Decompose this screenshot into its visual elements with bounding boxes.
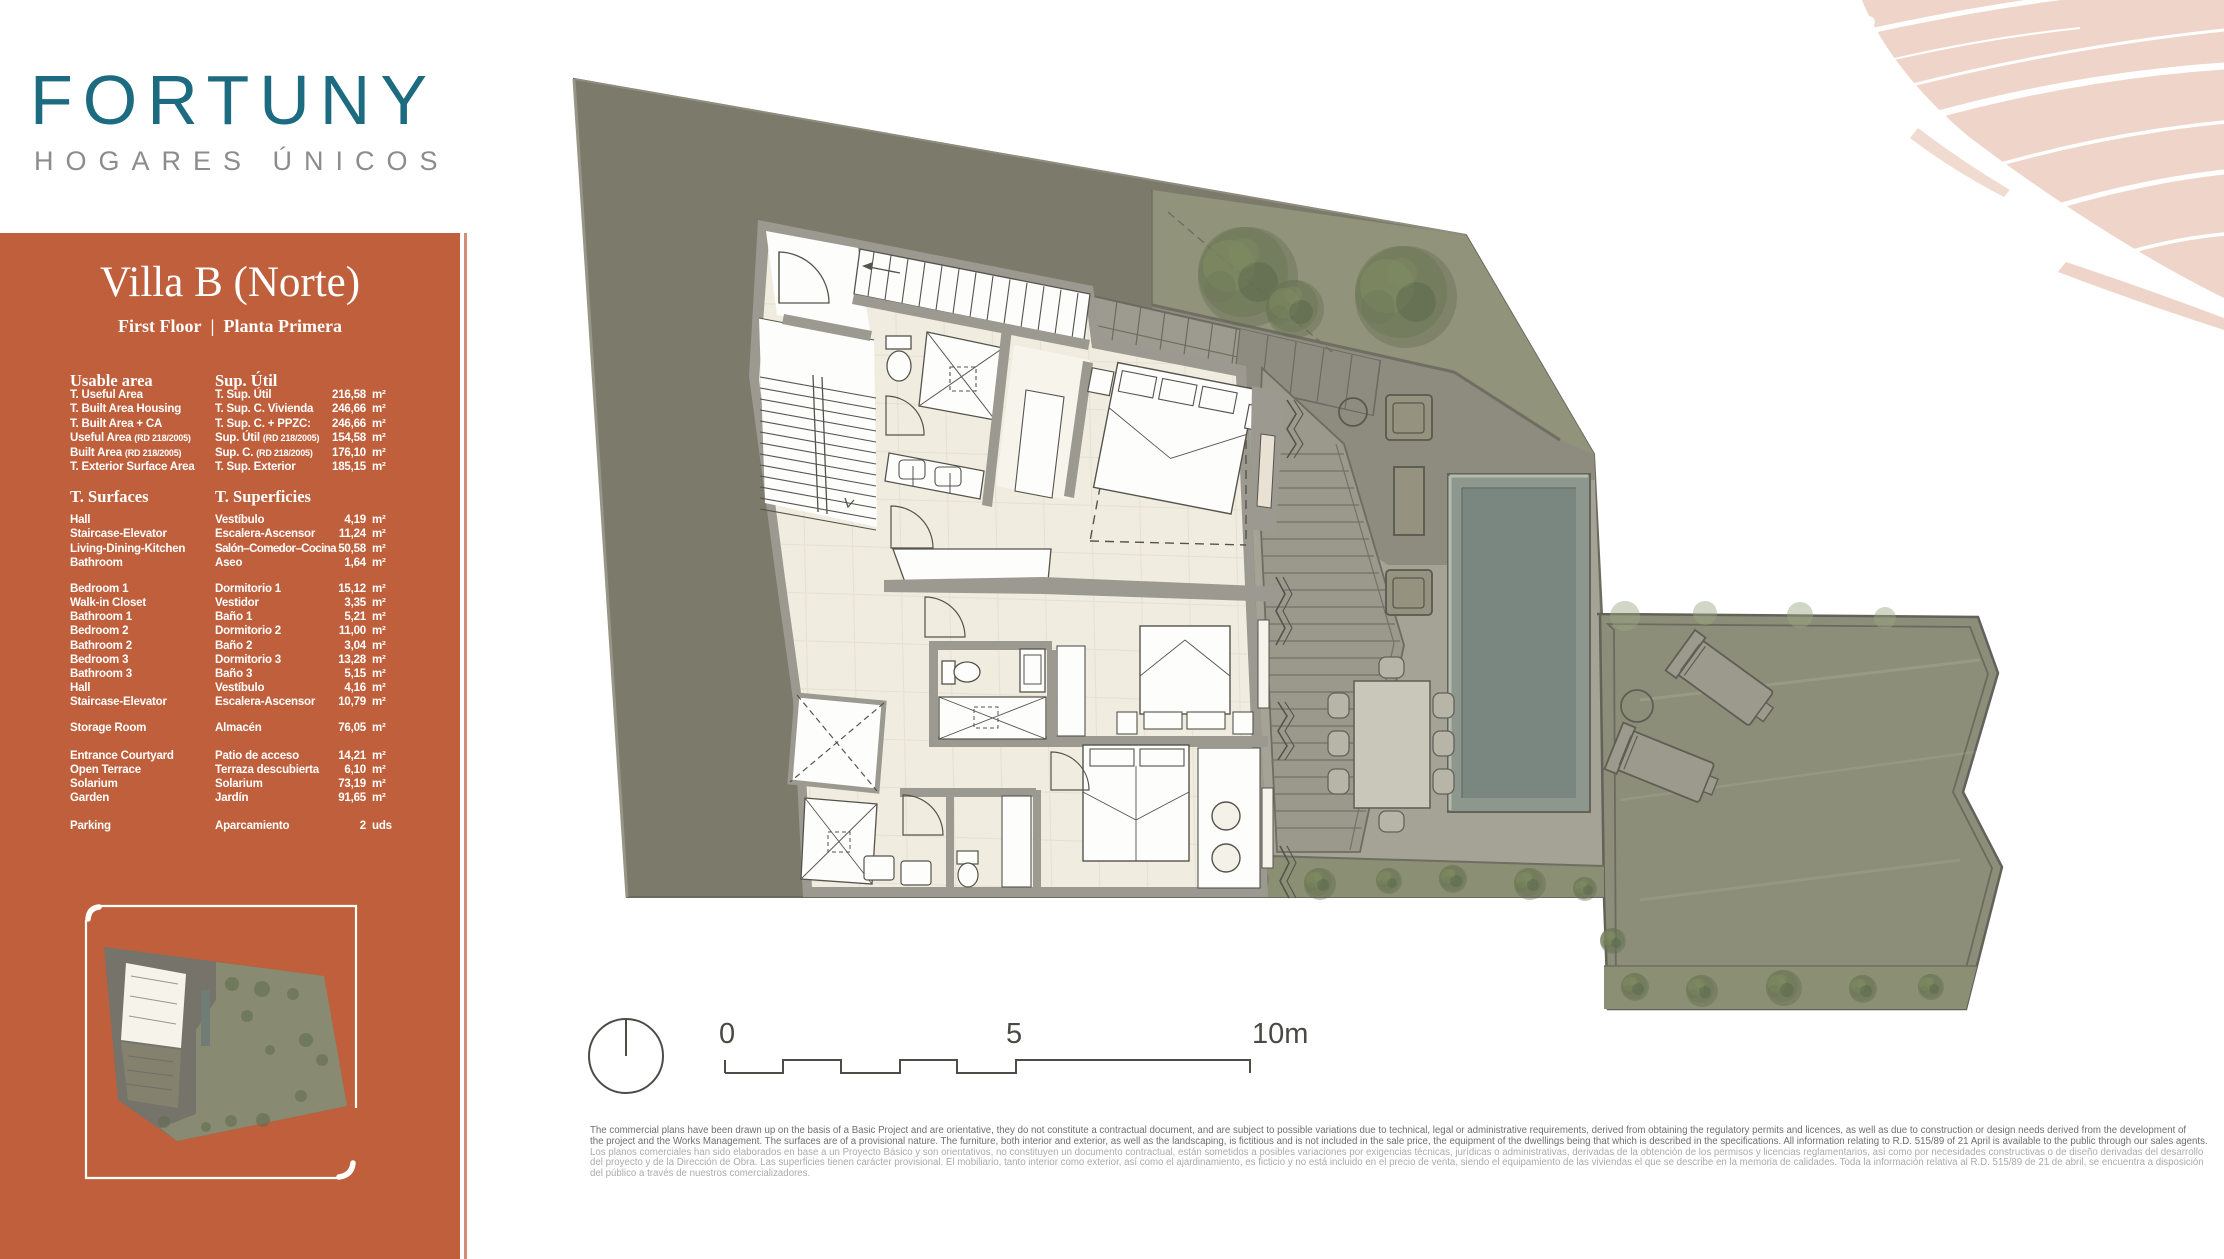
svg-text:5: 5	[1006, 1018, 1022, 1050]
svg-text:0: 0	[719, 1018, 735, 1050]
svg-text:10m: 10m	[1252, 1018, 1308, 1050]
